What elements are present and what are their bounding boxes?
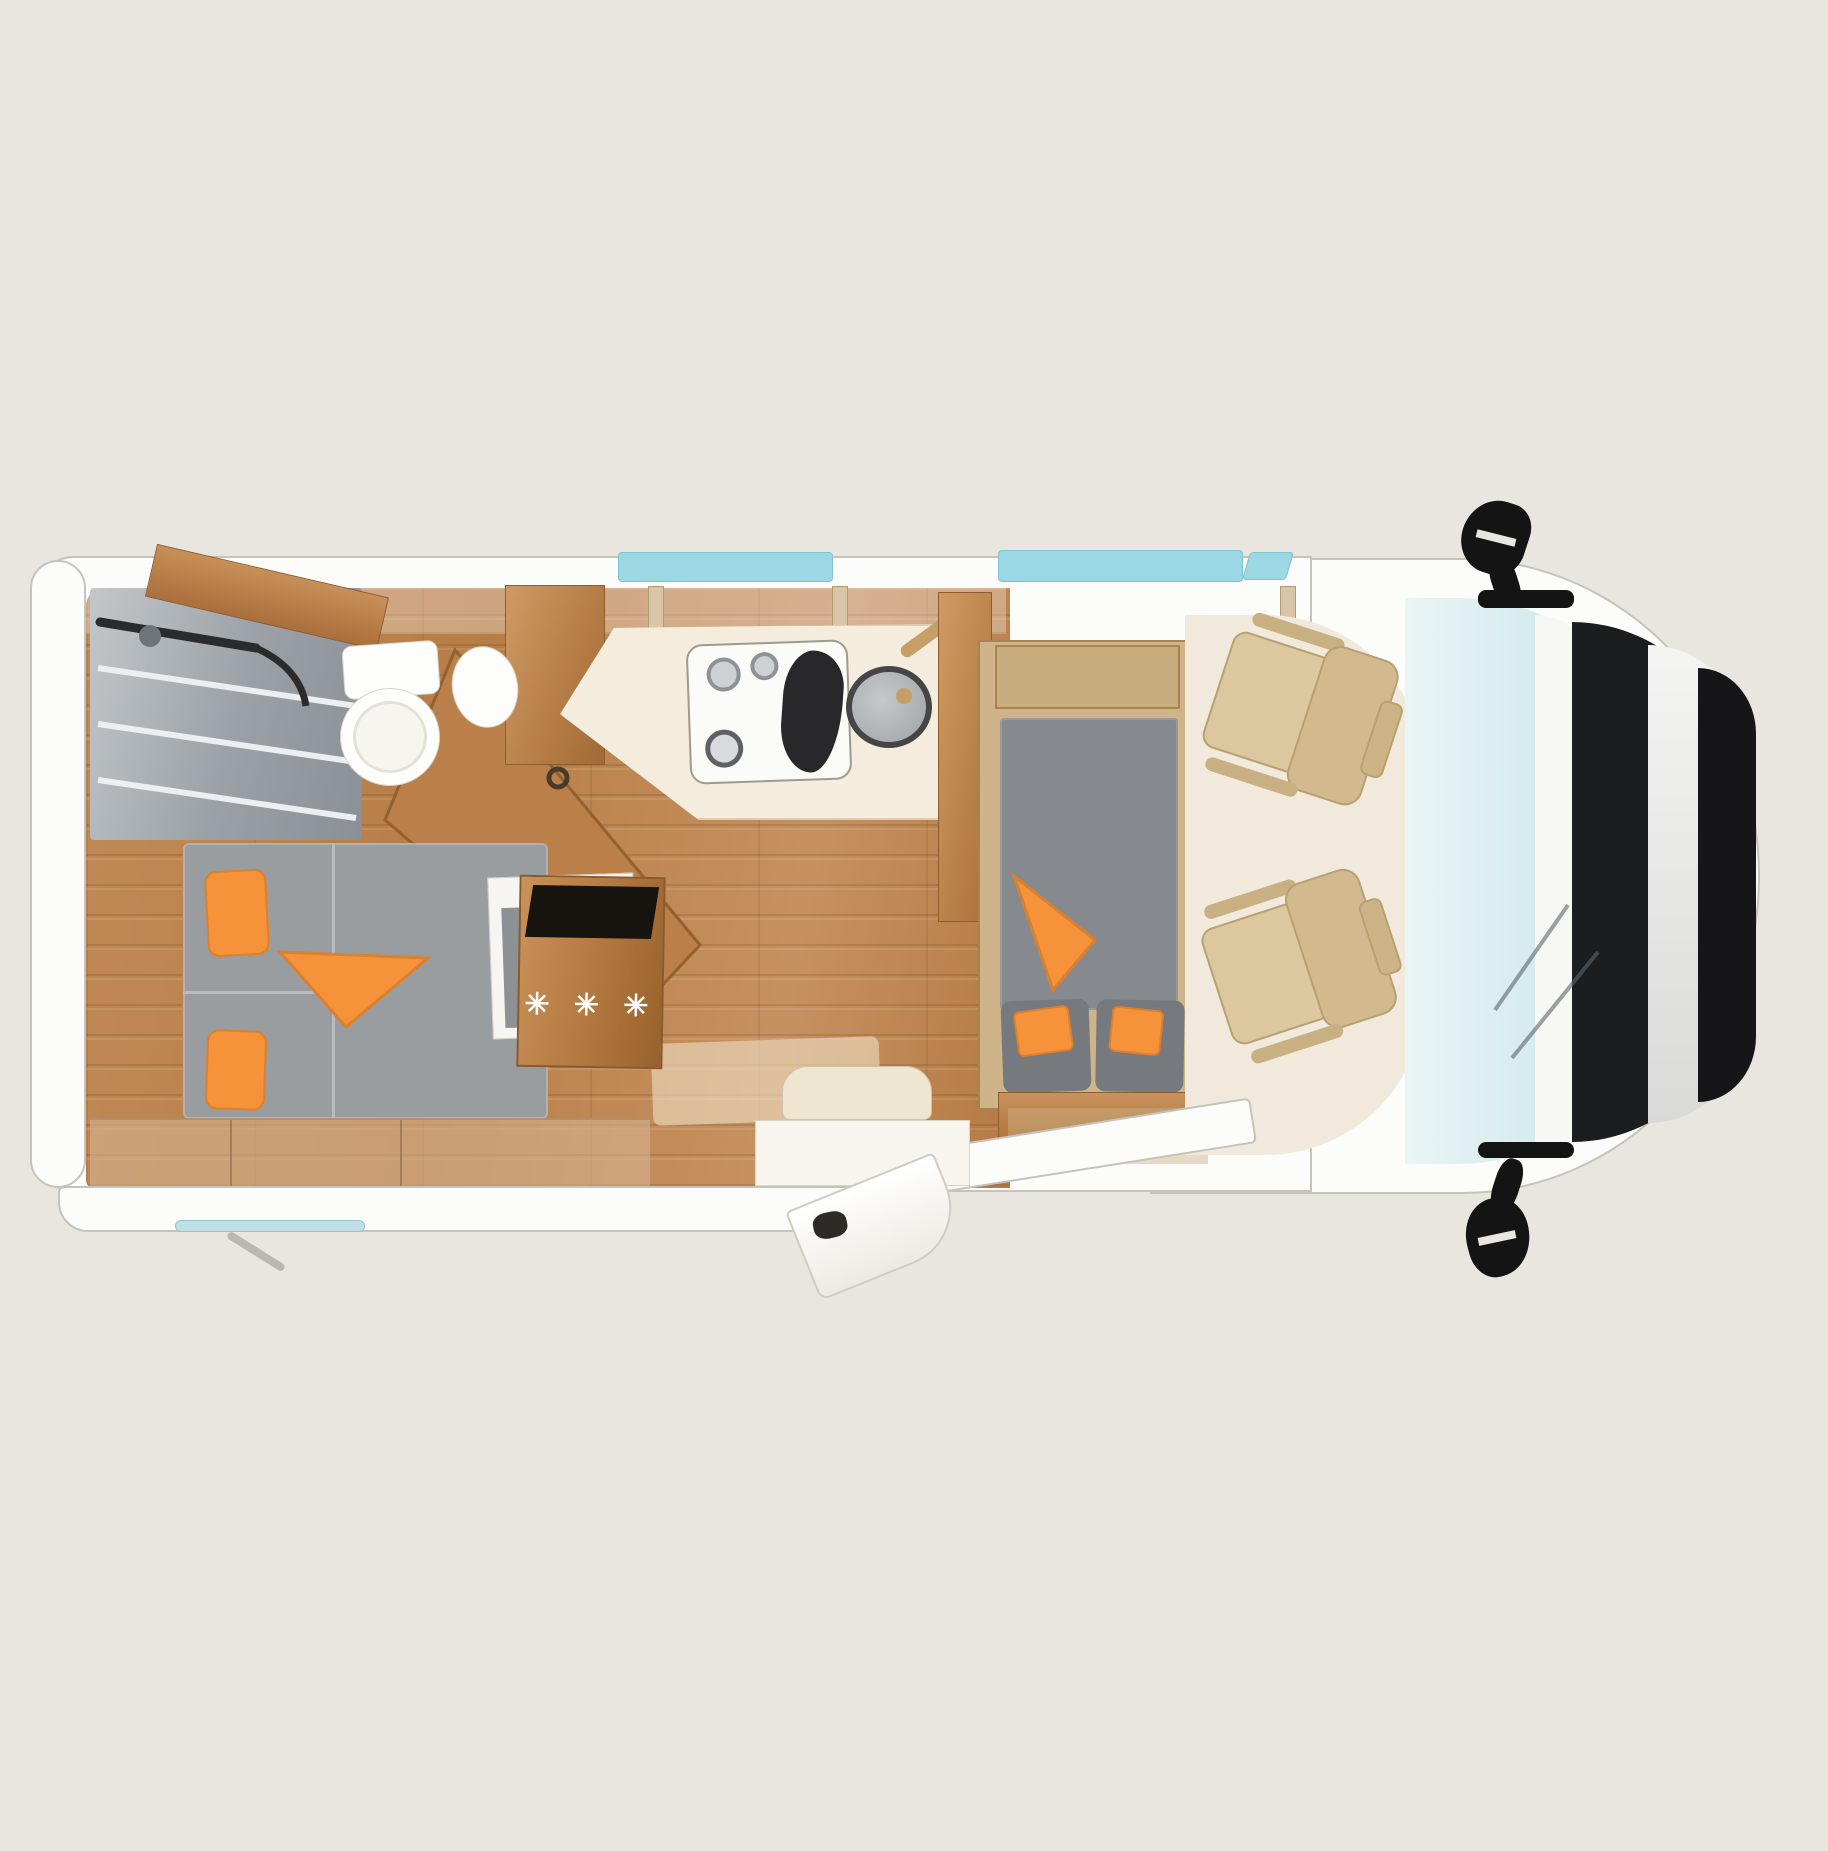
bed-pillow [205,1029,268,1111]
stove-burner [706,657,741,692]
awning-crank-rod [226,1231,286,1273]
rear-wall-panel [30,560,86,1188]
front-grille [1698,668,1756,1102]
stove-glass-lid [778,649,846,775]
bench-pillow [1108,1005,1165,1056]
cab-side-window [1242,552,1294,580]
two-burner-stove [686,639,853,785]
bed-pillow [204,868,270,957]
awning-rail [175,1220,365,1232]
entry-door-handle [811,1209,850,1242]
dinette-window [998,550,1243,582]
entry-step [782,1066,932,1120]
bench-cushion [1000,998,1091,1093]
storage-divider [400,1120,402,1190]
side-mirror-mount-top [1478,590,1574,608]
toilet-seat [353,701,427,773]
floorplan-canvas: ✳ ✳ ✳ [0,0,1828,1851]
mattress-split-line [183,991,333,994]
refrigerator-top-opening [525,885,659,939]
toilet-bowl [340,688,440,786]
bench-cushion [1095,999,1185,1093]
bench-pillow [1013,1004,1075,1057]
kitchen-faucet-base [896,688,912,704]
stove-knob [705,729,744,768]
kitchen-window [618,552,833,582]
storage-divider [230,1120,232,1190]
dinette-table-bed [1000,718,1178,1010]
stove-burner [750,652,779,681]
mattress-split-line [332,843,335,1119]
refrigerator: ✳ ✳ ✳ [516,875,665,1070]
side-mirror-mount-bottom [1478,1142,1574,1158]
refrigerator-frost-symbols: ✳ ✳ ✳ [519,987,662,1024]
dinette-headboard [995,645,1180,709]
kitchen-sink [846,666,932,748]
under-bed-storage-front [90,1118,650,1188]
